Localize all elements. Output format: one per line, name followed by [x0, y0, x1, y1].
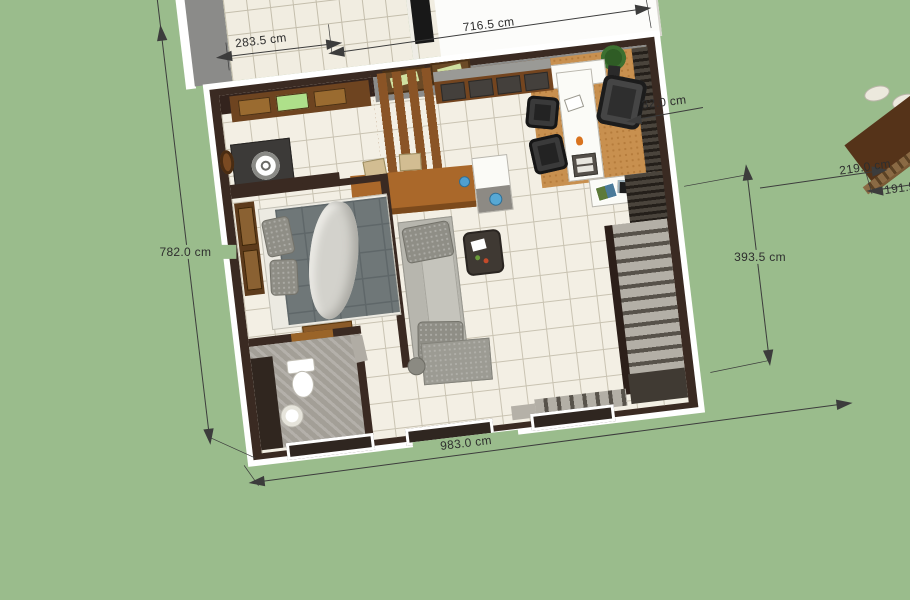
water-dispenser-cabinet: [471, 154, 513, 214]
coffee-table: [462, 228, 505, 276]
building: [203, 30, 705, 467]
dining-chair: [399, 153, 422, 171]
ottoman-rug: [421, 338, 493, 386]
paper: [471, 238, 487, 251]
desk-drawer-unit: [572, 153, 598, 178]
bed: [258, 194, 402, 331]
stair-louver-screen: [624, 171, 667, 223]
wheel: [250, 150, 281, 181]
dim-label-right-span: 393.5 cm: [709, 250, 811, 264]
floor-plan: 283.5 cm 716.5 cm 32.0 cm 782.0 cm 393.5…: [72, 0, 910, 600]
dim-label-left-height: 782.0 cm: [134, 245, 236, 259]
desk-candle: [576, 136, 584, 146]
floor-plan-viewport[interactable]: 283.5 cm 716.5 cm 32.0 cm 782.0 cm 393.5…: [0, 0, 910, 512]
office-chair: [525, 95, 560, 130]
bed-pillow: [269, 259, 299, 296]
chair-top: [863, 83, 892, 104]
